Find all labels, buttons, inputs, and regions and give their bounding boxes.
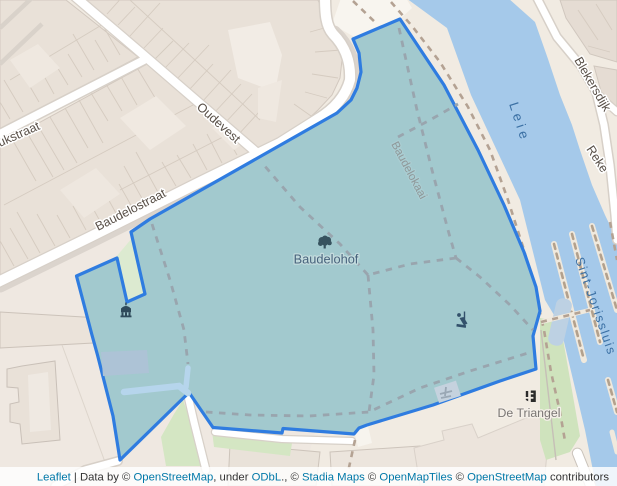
svg-text:Leaflet | Data by © OpenStreet: Leaflet | Data by © OpenStreetMap, under… bbox=[37, 472, 609, 484]
svg-text:De Triangel: De Triangel bbox=[498, 406, 561, 420]
svg-text:Baudelohof: Baudelohof bbox=[294, 252, 359, 267]
